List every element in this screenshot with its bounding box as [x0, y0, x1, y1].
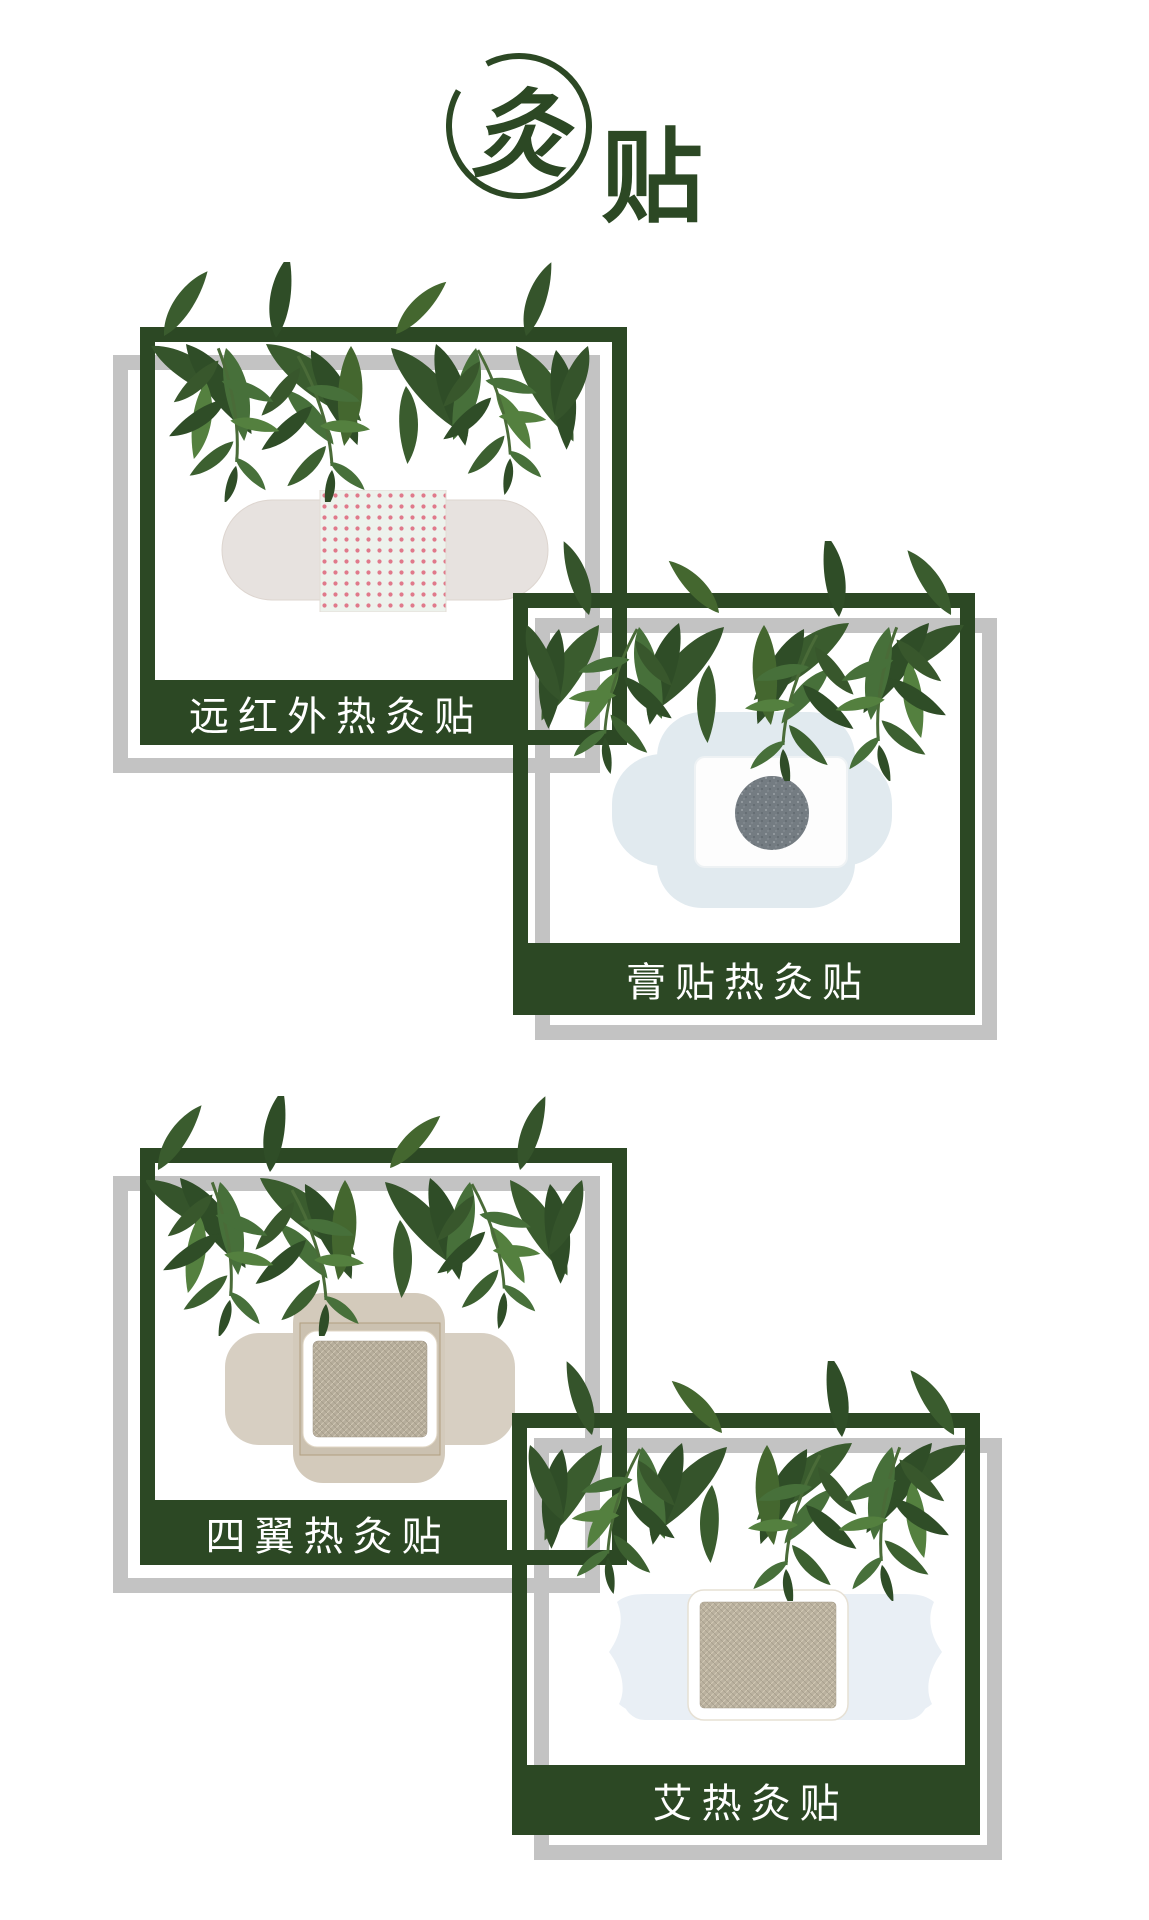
patch-image-band-aid-pink-dots	[220, 490, 550, 612]
patch-image-winged-moxa-pad	[603, 1588, 948, 1726]
logo-sub-text: 贴	[601, 123, 703, 236]
patch-image-four-wing-tan	[225, 1293, 515, 1483]
product-label-bar: 远红外热灸贴	[140, 680, 523, 745]
product-label-bar: 艾热灸贴	[512, 1765, 980, 1835]
logo-main-text: 灸	[471, 57, 567, 196]
patch-image-clover-gray-disc	[612, 712, 892, 912]
product-showcase-page: 灸 贴 远红外热灸贴 膏贴热灸贴	[0, 0, 1149, 1920]
product-label-bar: 膏贴热灸贴	[513, 943, 975, 1015]
product-label-text: 四翼热灸贴	[197, 1504, 451, 1562]
logo-main-character: 灸	[443, 50, 595, 202]
product-card-plaster: 膏贴热灸贴	[513, 593, 975, 1015]
logo-sub-character: 贴	[601, 126, 703, 233]
product-card-moxa: 艾热灸贴	[512, 1413, 980, 1835]
brand-logo: 灸 贴	[443, 40, 723, 245]
product-label-text: 艾热灸贴	[644, 1771, 849, 1829]
product-label-bar: 四翼热灸贴	[140, 1500, 507, 1565]
product-label-text: 远红外热灸贴	[180, 684, 483, 742]
product-label-text: 膏贴热灸贴	[617, 950, 871, 1008]
